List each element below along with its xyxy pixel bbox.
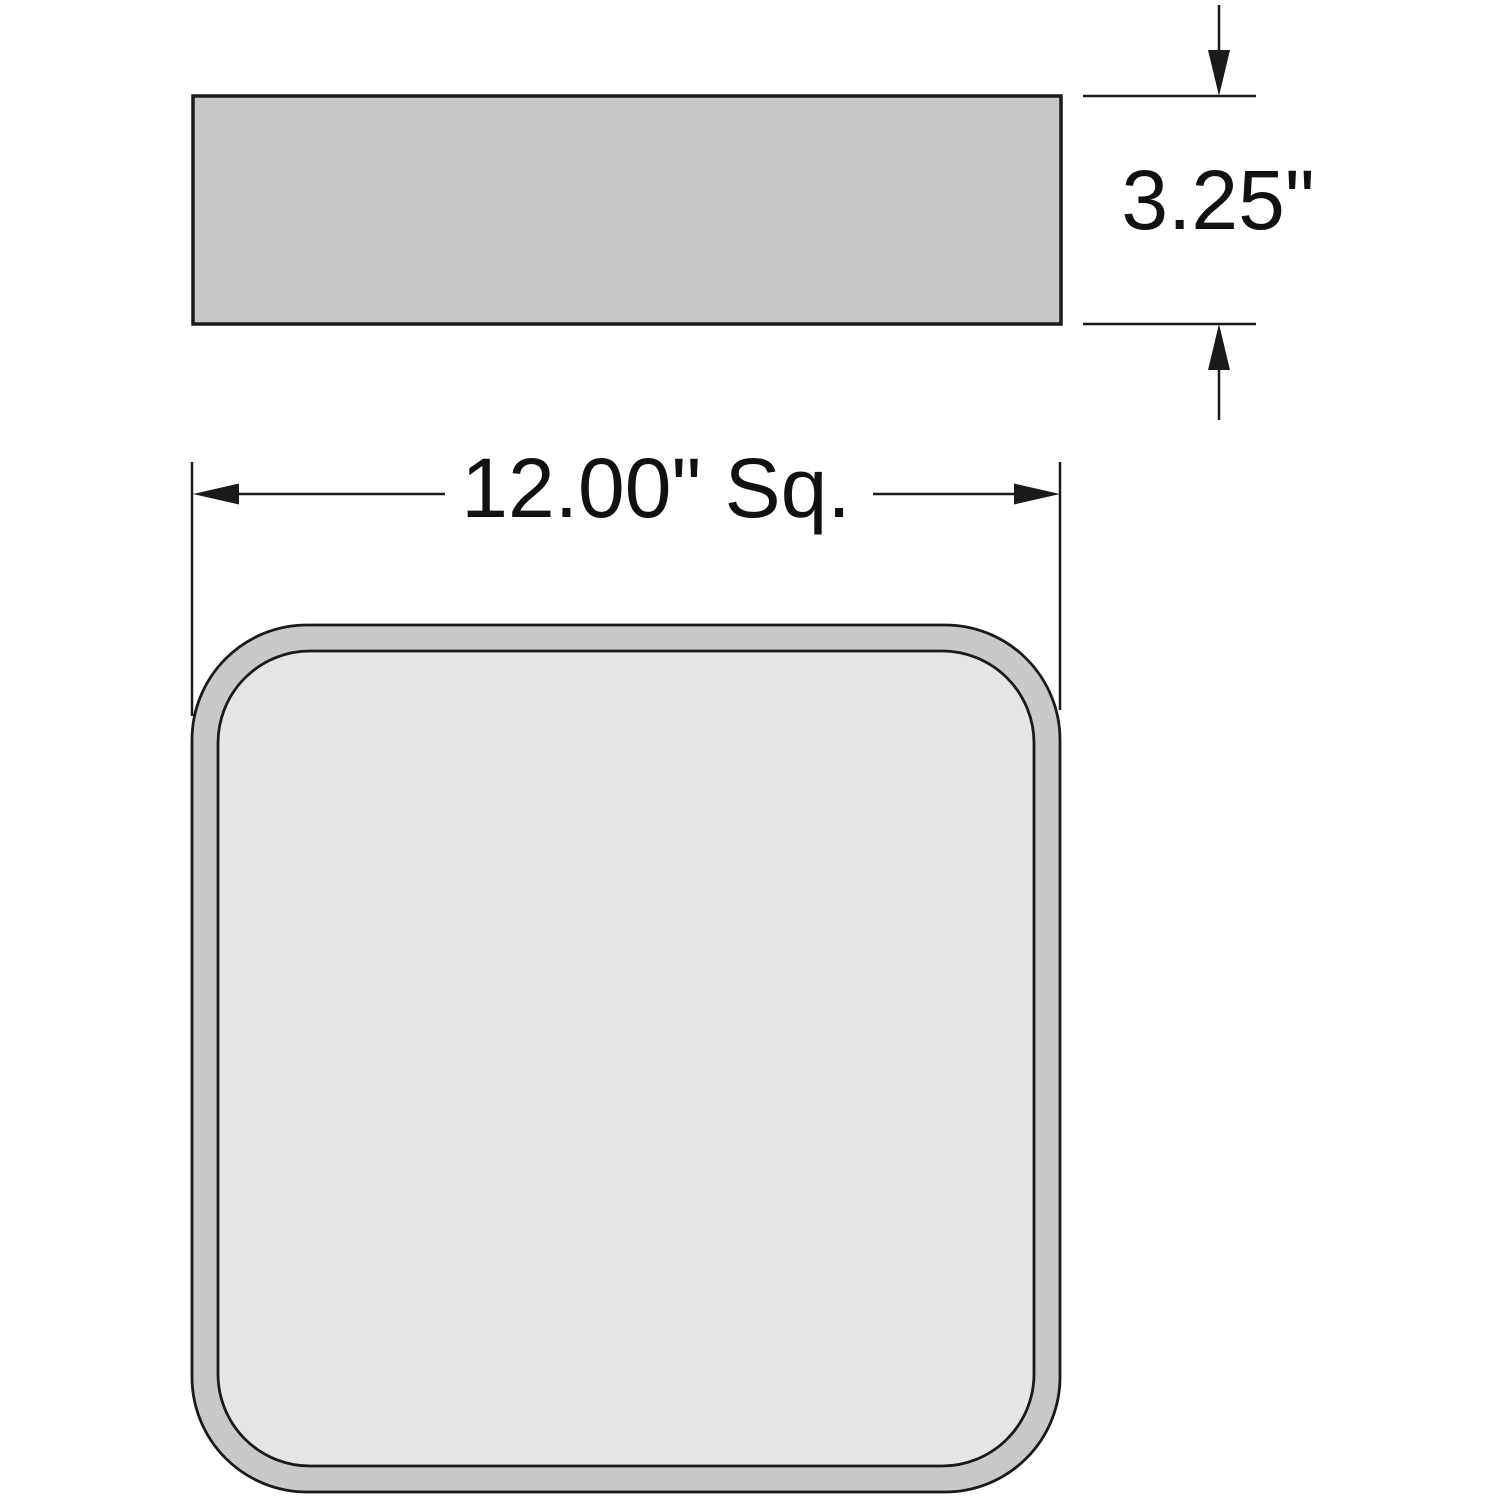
height-dimension-label: 3.25": [1121, 153, 1314, 247]
side-view-profile: [193, 96, 1061, 324]
dimension-arrow-down-icon: [1208, 50, 1230, 96]
top-view-inner-face: [218, 651, 1034, 1466]
dimension-arrow-left-icon: [193, 484, 239, 505]
dimension-arrow-right-icon: [1014, 484, 1060, 505]
width-dimension-label: 12.00" Sq.: [461, 441, 850, 535]
drawing-page: 3.25" 12.00" Sq.: [0, 0, 1499, 1499]
technical-drawing-canvas: 3.25" 12.00" Sq.: [0, 0, 1499, 1499]
dimension-arrow-up-icon: [1208, 324, 1230, 370]
